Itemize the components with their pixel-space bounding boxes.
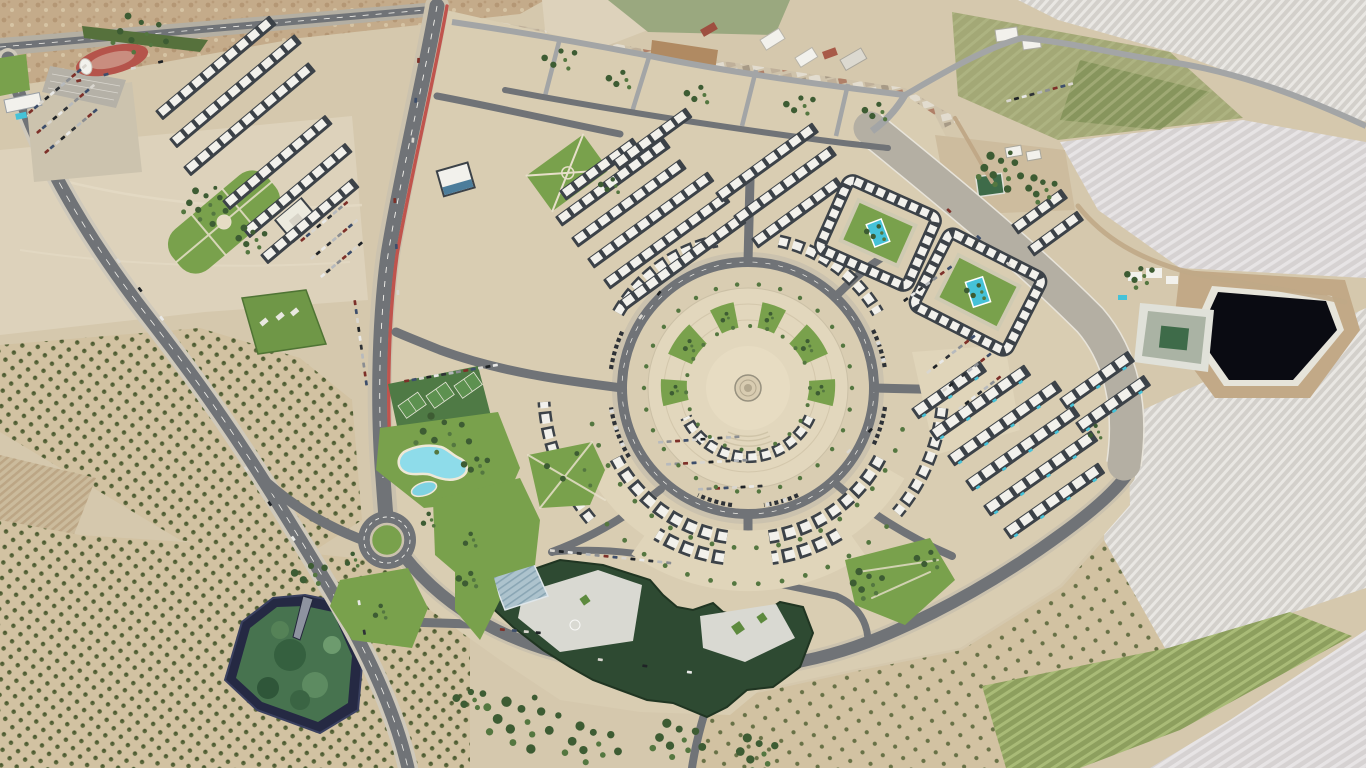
farm-shed [1005, 145, 1022, 158]
basin-green-water [1159, 326, 1189, 351]
main-roundabout [358, 511, 416, 569]
lawn-west-edge [0, 54, 30, 96]
aerial-photograph [0, 0, 1366, 768]
plaza-fountain [735, 375, 761, 401]
farm-swimming-pool [1118, 295, 1127, 300]
aerial-photo-stage [0, 0, 1366, 768]
farmhouse [1166, 276, 1178, 284]
farm-shed [1026, 150, 1041, 161]
